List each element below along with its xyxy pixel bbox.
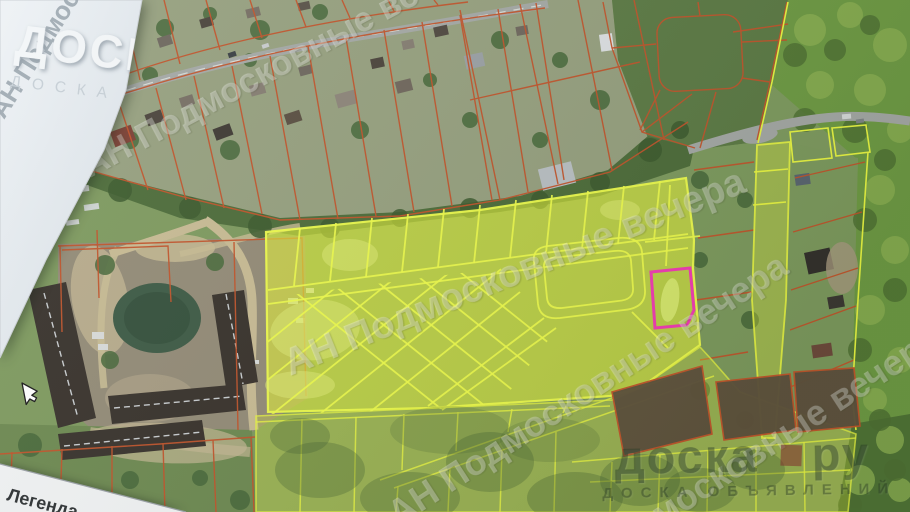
- photo-tint-overlay: [0, 0, 910, 512]
- listing-map-screenshot: АН Подмосковные вечера АН Подмосковные в…: [0, 0, 910, 512]
